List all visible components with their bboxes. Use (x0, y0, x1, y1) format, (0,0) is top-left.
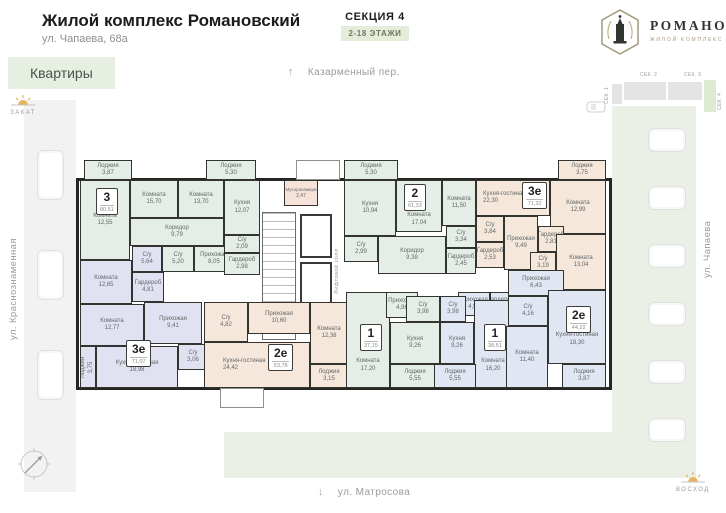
apartment-badge[interactable]: 380,51 (96, 188, 118, 215)
street-right: ул. Чапаева (702, 198, 713, 278)
logo-subtitle: ЖИЛОЙ КОМПЛЕКС (650, 37, 726, 43)
minimap-car-icon (586, 100, 606, 114)
lawn-bottom (224, 432, 696, 478)
room[interactable]: Комната12,38 (310, 302, 348, 364)
page-title: Жилой комплекс Романовский (42, 11, 300, 31)
room[interactable]: Лоджия3,87 (562, 364, 606, 388)
entrance (296, 160, 340, 180)
room[interactable]: С/у4,82 (204, 302, 248, 342)
minimap-sec1[interactable] (612, 84, 622, 104)
room[interactable]: Кухня9,26 (440, 322, 474, 364)
room[interactable]: Лоджия3,75 (558, 160, 606, 180)
room[interactable]: С/у5,20 (162, 246, 194, 272)
apartment-badge[interactable]: 261,33 (404, 184, 426, 211)
room[interactable]: Лоджия3,87 (84, 160, 132, 180)
sunset-marker: ЗАКАТ (10, 93, 36, 116)
room[interactable]: Гардероб4,81 (132, 272, 164, 302)
room[interactable]: Гардероб2,98 (224, 253, 260, 275)
logo-text: РОМАНОВСКИЙ ЖИЛОЙ КОМПЛЕКС (650, 18, 726, 43)
room[interactable]: Кухня12,07 (224, 180, 260, 235)
service-room: Мусорокамера 2,47 (284, 180, 318, 206)
room[interactable]: Комната15,70 (130, 180, 178, 218)
arrow-down-icon: ↓ (318, 486, 324, 498)
section-info: СЕКЦИЯ 4 2-18 ЭТАЖИ (325, 11, 425, 41)
room[interactable]: Коридор9,79 (130, 218, 224, 246)
room[interactable]: Лоджия5,30 (344, 160, 398, 180)
car (648, 302, 686, 326)
car (37, 250, 64, 300)
apartments-button[interactable]: Квартиры (8, 57, 115, 89)
floor-plan-page: ↑Казарменный пер. ул. Краснознаменная ул… (0, 0, 726, 513)
minimap-label-sec4: СЕК. 4 (717, 86, 723, 110)
room[interactable]: С/у3,84 (476, 216, 504, 242)
room[interactable]: Гардероб2,53 (476, 242, 504, 268)
car (648, 360, 686, 384)
room[interactable]: Кухня10,94 (344, 180, 396, 236)
compass-icon (14, 444, 54, 484)
street-bottom: ↓ул. Матросова (318, 486, 410, 498)
room[interactable]: С/у3,98 (406, 296, 440, 322)
apartment-badge[interactable]: 2е44,22 (566, 306, 591, 333)
room[interactable]: Лоджия5,55 (434, 364, 476, 388)
car (37, 350, 64, 400)
room[interactable]: Комната13,70 (178, 180, 224, 218)
room[interactable]: Прихожая9,41 (144, 302, 202, 344)
room[interactable]: С/у2,09 (224, 235, 260, 253)
arrow-up-icon: ↑ (288, 66, 294, 78)
logo-name: РОМАНОВСКИЙ (650, 18, 726, 34)
sunrise-icon (680, 470, 706, 485)
apartment-badge[interactable]: 3е71,32 (522, 182, 547, 209)
room[interactable]: Лоджия5,55 (390, 364, 440, 388)
logo-emblem-icon (598, 8, 642, 56)
minimap-sec2[interactable] (624, 82, 666, 100)
elevator (300, 214, 332, 258)
elevator (300, 262, 332, 306)
elevator-hall-label: Лифтовой холл (334, 224, 340, 294)
apartment-badge[interactable]: 138,51 (484, 324, 506, 351)
room[interactable]: С/у3,98 (440, 296, 466, 322)
apartment-badge[interactable]: 137,15 (360, 324, 382, 351)
room[interactable]: Комната11,50 (442, 180, 476, 226)
floors-badge: 2-18 ЭТАЖИ (341, 26, 408, 41)
apartment-badge[interactable]: 3е71,07 (126, 340, 151, 367)
apartment-badge[interactable]: 2е53,78 (268, 344, 293, 371)
room[interactable]: Кухня9,26 (390, 322, 440, 364)
minimap-label-sec3: СЕК. 3 (684, 72, 701, 78)
sunset-icon (10, 93, 36, 108)
street-left: ул. Краснознаменная (8, 180, 19, 340)
room[interactable]: Лоджия3,15 (310, 364, 348, 388)
room[interactable]: Прихожая10,60 (248, 302, 310, 334)
car (648, 186, 686, 210)
car (37, 150, 64, 200)
room[interactable]: С/у4,16 (508, 296, 548, 326)
entrance (220, 388, 264, 408)
minimap-sec4-active[interactable] (704, 80, 716, 112)
car (648, 418, 686, 442)
street-top: ↑Казарменный пер. (288, 66, 400, 78)
sunrise-marker: ВОСХОД (676, 470, 710, 493)
room[interactable]: Коридор9,38 (378, 236, 446, 274)
room[interactable]: Гардероб2,45 (446, 248, 476, 274)
room[interactable]: С/у2,99 (344, 236, 378, 262)
room[interactable]: Комната12,65 (80, 260, 132, 304)
minimap-sec3[interactable] (668, 82, 702, 100)
room[interactable]: Кухня-гостиная24,42 (204, 342, 310, 388)
section-label: СЕКЦИЯ 4 (325, 11, 425, 23)
room[interactable]: Лоджия5,30 (206, 160, 256, 180)
room[interactable]: Комната11,40 (506, 326, 548, 388)
car (648, 128, 686, 152)
minimap-label-sec2: СЕК. 2 (640, 72, 657, 78)
room[interactable]: С/у5,64 (132, 246, 162, 272)
page-address: ул. Чапаева, 68а (42, 33, 128, 45)
car (648, 244, 686, 268)
room[interactable]: С/у3,34 (446, 226, 476, 248)
room[interactable]: Лоджия3,75 (80, 346, 96, 388)
logo[interactable]: РОМАНОВСКИЙ ЖИЛОЙ КОМПЛЕКС (598, 8, 726, 56)
